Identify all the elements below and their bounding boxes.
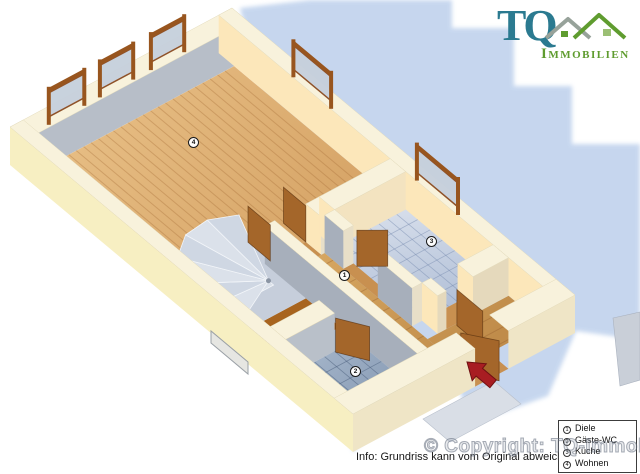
legend-num-1: 1 [563, 426, 571, 434]
legend-row-diele: 1Diele [563, 423, 636, 435]
copyright-watermark: © Copyright: TQ-Immobilien [424, 436, 640, 458]
legend-label-diele: Diele [575, 423, 596, 433]
room-marker-kueche: 3 [426, 236, 437, 247]
legend-row-wohnen: 4Wohnen [563, 458, 636, 470]
legend-num-4: 4 [563, 461, 571, 469]
logo-company-name: Immobilien [541, 46, 630, 63]
floorplan-page: TQ Immobilien 1 2 3 4 1Diele 2Gäste-WC 3… [0, 0, 640, 474]
room-marker-wohnen: 4 [188, 137, 199, 148]
logo: TQ Immobilien [495, 8, 640, 72]
legend-label-wohnen: Wohnen [575, 458, 608, 468]
room-marker-diele: 1 [339, 270, 350, 281]
room-marker-gaeste-wc: 2 [350, 366, 361, 377]
